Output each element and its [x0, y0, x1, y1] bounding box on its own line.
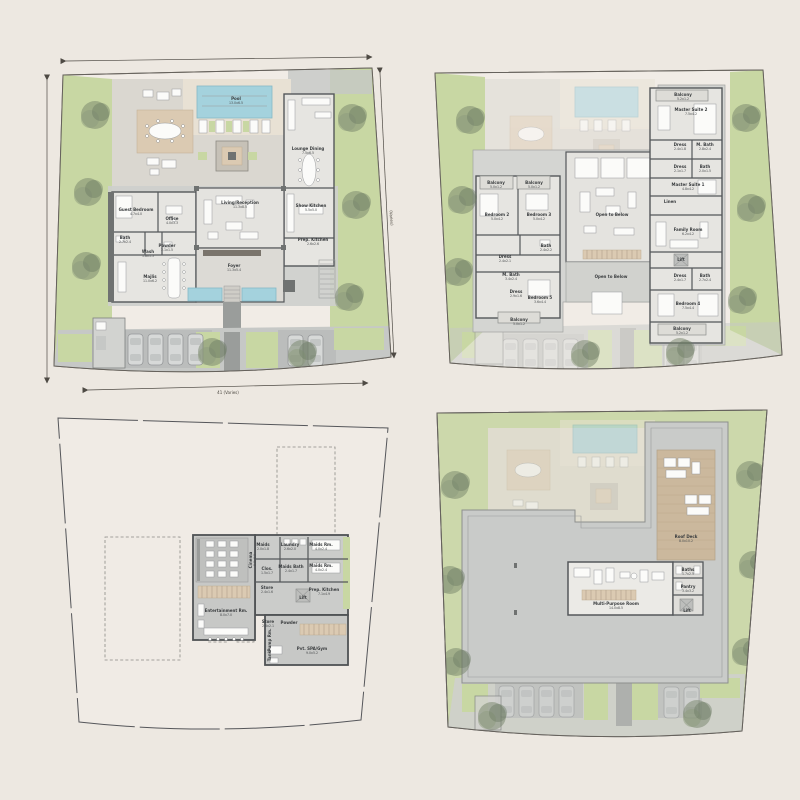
floor-plan-sheet: 41 (Varies) (Varies) Pool13.0x6.5Lounge …	[0, 0, 800, 800]
panel-roof: Roof Deck8.0x10.2Multi-Purpose Room14.0x…	[400, 400, 800, 800]
outdoor-dining-deck	[137, 110, 193, 153]
room-label: Lift	[299, 595, 307, 600]
roof-deck	[657, 450, 715, 560]
room-label: Baths1.7x2.5	[682, 567, 696, 576]
room-label: Dress2.4x1.7	[674, 273, 687, 282]
room-label: Dress2.4x2.1	[499, 254, 512, 263]
room-label: Wash1.8x1.5	[142, 249, 154, 258]
room-label: Bath2.7x2.4	[119, 235, 131, 244]
room-label: Open to Below	[596, 212, 629, 217]
room-label: Maids2.0x1.8	[256, 542, 270, 551]
ground-floor-plan: 41 (Varies) (Varies) Pool13.0x6.5Lounge …	[0, 0, 400, 400]
room-label: Bath2.0x1.5	[699, 164, 711, 173]
room-label: Bath2.4x2.2	[540, 243, 552, 252]
room-label: Pump Rm.	[267, 628, 272, 651]
room-label: Dress2.9x1.6	[510, 289, 523, 298]
panel-ground-floor: 41 (Varies) (Varies) Pool13.0x6.5Lounge …	[0, 0, 400, 400]
room-label: Foyer11.3x5.4	[227, 263, 241, 272]
room-label: Dress2.4x1.8	[674, 142, 687, 151]
room-label: Bath2.7x2.4	[699, 273, 711, 282]
panel-first-floor: Balcony5.0x1.2Balcony5.0x1.2Bedroom 25.0…	[400, 0, 800, 400]
room-label: Tank	[267, 650, 272, 661]
room-label: Pantry3.4x3.2	[681, 584, 696, 593]
dimension-bottom: 41 (Varies)	[217, 390, 239, 395]
room-label: Store2.4x1.6	[261, 585, 274, 594]
room-label: Clos.1.5x1.7	[261, 566, 273, 575]
roof-plan: Roof Deck8.0x10.2Multi-Purpose Room14.0x…	[400, 400, 800, 800]
room-label: Dress2.1x1.7	[674, 164, 687, 173]
room-label: Store2.6x2.1	[262, 619, 275, 628]
room-label: Powder2.1x1.5	[159, 243, 176, 252]
room-label: Lift	[683, 608, 691, 613]
room-label: Majlis11.0x6.2	[143, 274, 157, 283]
room-label: Linen	[664, 199, 676, 204]
basement-plan: Cinema8.0x6.0Maids2.0x1.8Laundry2.6x2.0M…	[0, 400, 400, 800]
room-label: Powder	[281, 620, 298, 625]
room-label: Open to Below	[595, 274, 628, 279]
first-floor-plan: Balcony5.0x1.2Balcony5.0x1.2Bedroom 25.0…	[400, 0, 800, 400]
room-label: Lift	[677, 257, 685, 262]
room-label: Office4.0x3.3	[166, 216, 179, 225]
panel-basement: Cinema8.0x6.0Maids2.0x1.8Laundry2.6x2.0M…	[0, 400, 400, 800]
dimension-right: (Varies)	[389, 210, 395, 226]
